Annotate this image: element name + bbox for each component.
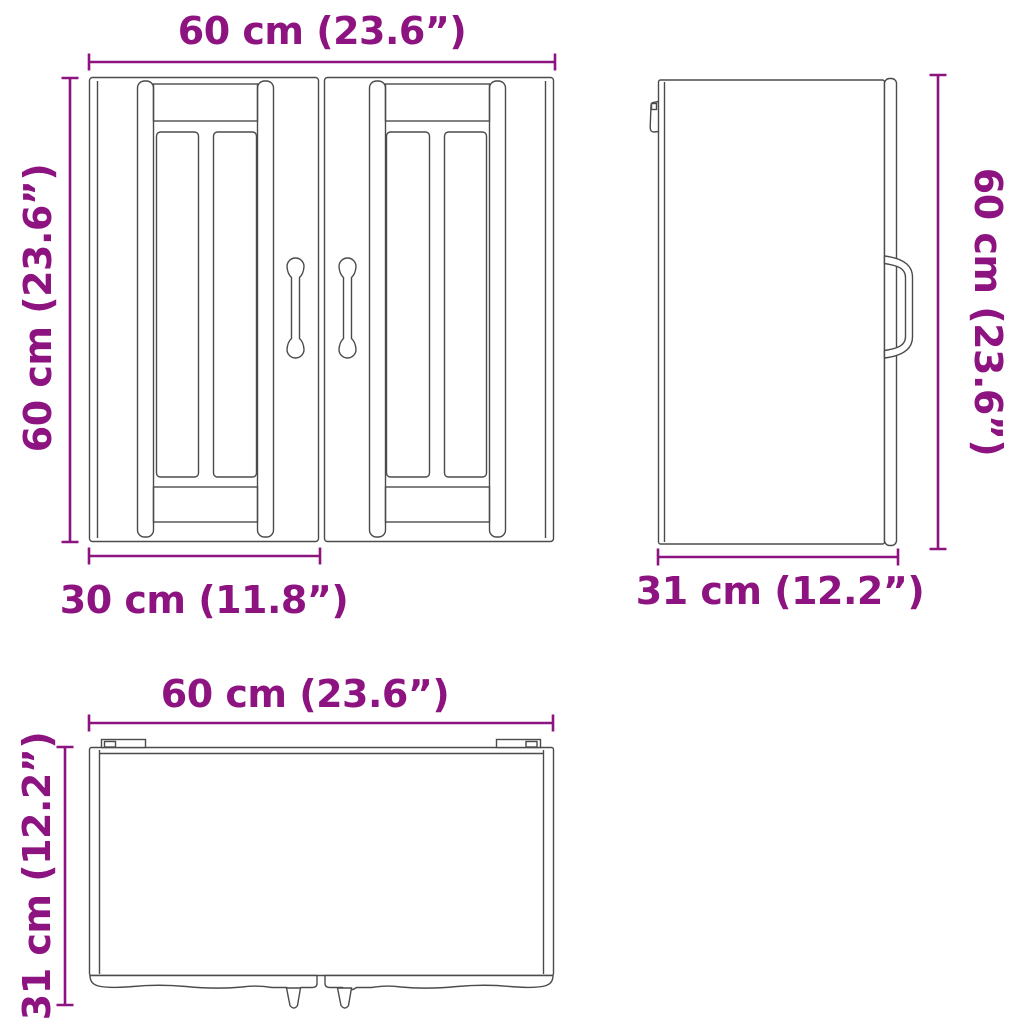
side-wall-bracket [650,102,658,133]
top-right-door-edge [325,976,553,991]
top-left-door-edge [90,976,317,991]
side-view-drawing [650,79,912,546]
front-left-door [90,78,319,542]
dimension-diagram: 60 cm (23.6”) 60 cm (23.6”) 30 cm (11.8”… [0,0,1024,1024]
top-depth-dimension-line [57,747,74,1005]
front-width-dimension-line [89,54,555,71]
diagram-line-art [0,0,1024,1024]
top-view-drawing [90,740,554,1009]
front-height-dimension-label: 60 cm (23.6”) [19,164,57,452]
front-right-door [325,78,554,542]
front-door-width-dimension-label: 30 cm (11.8”) [60,581,348,619]
side-depth-dimension-line [658,549,898,566]
front-view-drawing [90,78,554,542]
front-right-door-handle [339,258,356,358]
side-door-slab [885,79,897,546]
top-right-handle [338,988,352,1008]
side-height-dimension-line [930,75,947,549]
front-door-width-dimension-line [89,548,320,565]
front-height-dimension-line [62,78,79,542]
side-depth-dimension-label: 31 cm (12.2”) [636,572,924,610]
top-depth-dimension-label: 31 cm (12.2”) [18,732,56,1020]
front-width-dimension-label: 60 cm (23.6”) [178,12,466,50]
top-width-dimension-label: 60 cm (23.6”) [161,675,449,713]
top-width-dimension-line [89,715,553,732]
side-height-dimension-label: 60 cm (23.6”) [969,168,1007,456]
top-left-handle [287,988,301,1008]
front-left-door-handle [287,258,304,358]
top-left-hinge [102,740,146,748]
top-right-hinge [497,740,541,748]
